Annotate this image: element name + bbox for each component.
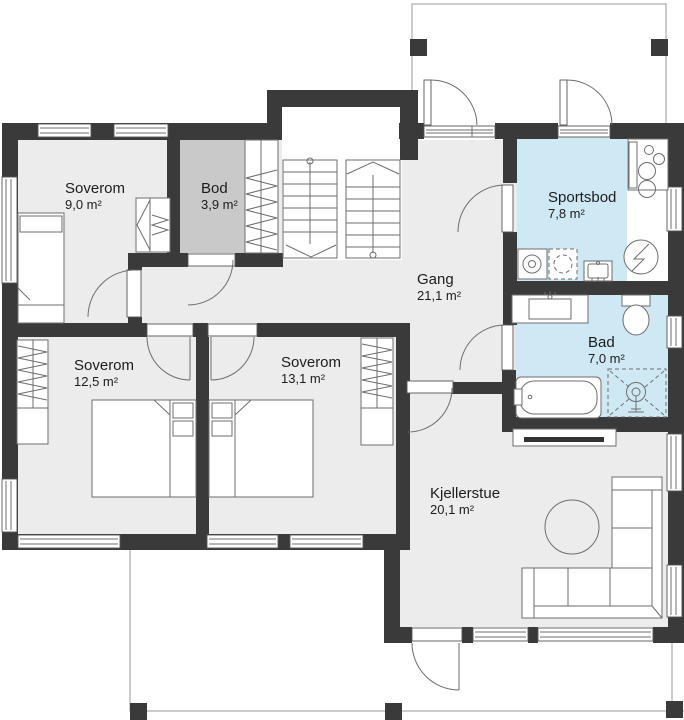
window — [667, 434, 682, 491]
wardrobe-soverom-9 — [136, 198, 170, 252]
room-label-bad: Bad — [588, 334, 615, 351]
room-area-kjellerstue: 20,1 m² — [430, 502, 475, 517]
room-label-sportsbod: Sportsbod — [548, 189, 616, 206]
water-heater — [628, 139, 668, 198]
window — [18, 535, 120, 548]
electrical-panel — [624, 240, 658, 274]
room-area-soverom-12: 12,5 m² — [74, 374, 119, 389]
room-label-soverom-13: Soverom — [281, 354, 341, 371]
wardrobe-soverom-12 — [17, 340, 48, 444]
terrace-post — [651, 39, 668, 56]
room-label-bod: Bod — [201, 180, 228, 197]
room-area-soverom-9: 9,0 m² — [65, 197, 103, 212]
window — [207, 535, 278, 548]
room-area-bad: 7,0 m² — [588, 351, 626, 366]
bathtub — [514, 377, 601, 418]
window — [38, 124, 91, 137]
window — [2, 479, 17, 532]
washing-machine — [518, 249, 547, 279]
terrace-post — [130, 703, 147, 720]
bed-double — [92, 400, 196, 497]
floor-plan: Soverom 9,0 m² Bod 3,9 m² Sportsbod 7,8 … — [0, 0, 684, 720]
vanity-sink — [512, 291, 588, 323]
terrace-top — [410, 4, 668, 125]
window — [667, 565, 682, 617]
window — [667, 187, 682, 231]
toilet — [622, 295, 650, 335]
window — [538, 628, 653, 641]
terrace-door-gang — [424, 80, 495, 137]
room-area-gang: 21,1 m² — [417, 288, 462, 303]
window — [473, 628, 528, 641]
exterior-door-kjellerstue — [412, 628, 462, 690]
bed-double — [209, 400, 313, 497]
room-label-soverom-12: Soverom — [74, 357, 134, 374]
window — [290, 535, 363, 548]
floor-plan-page: Soverom 9,0 m² Bod 3,9 m² Sportsbod 7,8 … — [0, 0, 684, 720]
room-area-sportsbod: 7,8 m² — [548, 206, 586, 221]
room-label-kjellerstue: Kjellerstue — [430, 485, 500, 502]
window — [667, 316, 682, 348]
room-area-bod: 3,9 m² — [201, 197, 239, 212]
room-label-soverom-9: Soverom — [65, 180, 125, 197]
terrace-post — [385, 703, 402, 720]
utility-sink — [584, 261, 612, 281]
wardrobe-soverom-13 — [361, 338, 393, 445]
window — [2, 177, 17, 283]
terrace-post — [666, 701, 683, 718]
room-label-gang: Gang — [417, 271, 454, 288]
dryer — [549, 249, 577, 279]
bed-single — [18, 213, 64, 323]
coffee-table — [545, 500, 599, 554]
window — [114, 124, 168, 137]
tv — [524, 437, 604, 442]
terrace-door-sportsbod — [558, 80, 612, 137]
terrace-post — [410, 39, 427, 56]
room-area-soverom-13: 13,1 m² — [281, 371, 326, 386]
tv-bench — [513, 429, 616, 446]
